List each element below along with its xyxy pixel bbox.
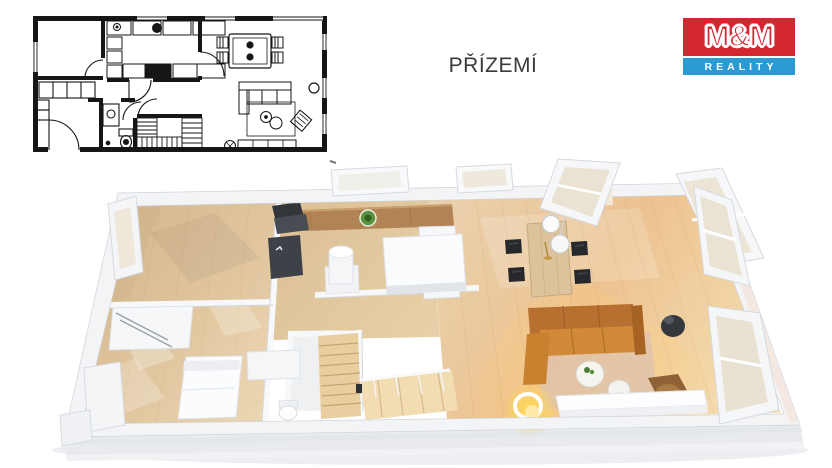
dining-chair [508, 267, 525, 282]
window-handle-mark [330, 161, 336, 163]
real-estate-floorplan-image: PŘÍZEMÍ M&M REALITY [0, 0, 832, 468]
sofa-seats [540, 326, 637, 356]
shower-box [247, 350, 300, 380]
dining-chair [574, 269, 591, 284]
pendant-lamp [551, 235, 569, 253]
stairs-3d [318, 333, 458, 420]
mm-reality-logo: M&M REALITY [683, 18, 795, 75]
right-glass-panel-2 [708, 306, 779, 424]
logo-mm-text: M&M [705, 20, 774, 54]
top-window-1 [331, 166, 409, 196]
outer-walls [36, 19, 325, 150]
floorplan-3d-render [0, 158, 832, 468]
logo-reality-text: REALITY [701, 61, 778, 73]
toilet [279, 406, 297, 420]
sink-counter-dark [268, 235, 303, 279]
dining-chair [505, 239, 522, 254]
pendant-lamp [543, 216, 560, 233]
floorplan-2d-drawing [33, 16, 327, 154]
top-window-2 [456, 164, 513, 193]
wardrobe [109, 306, 193, 350]
logo-reality-band: REALITY [683, 58, 795, 75]
bed-pillow [183, 360, 240, 371]
newel-mark [356, 384, 362, 393]
logo-mm-block: M&M [683, 18, 795, 56]
dining-chair [571, 241, 588, 256]
floor-title: PŘÍZEMÍ [433, 53, 553, 79]
sofa-chaise [523, 333, 550, 385]
coffee-table-large [576, 361, 604, 387]
